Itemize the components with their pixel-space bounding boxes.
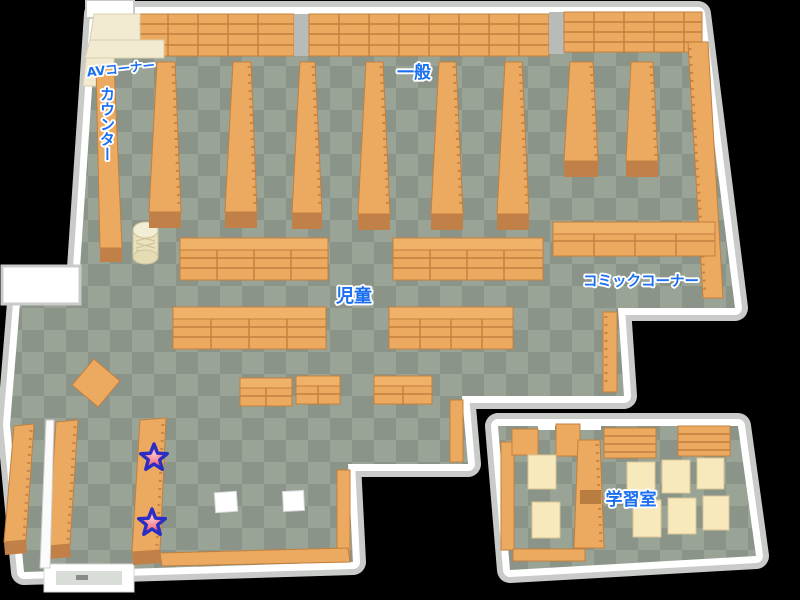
low-shelf-small [374,376,432,404]
top-wall-bookshelves [138,12,702,56]
bookshelf-column [564,62,598,177]
left-wall-protrusion [2,266,80,304]
low-shelf [389,307,513,349]
wall-shelf [337,470,350,558]
main-entrance [44,564,134,592]
bookshelf-run-center [309,14,549,56]
desk [668,498,696,534]
label-children: 児童 [335,285,372,307]
floor-box [282,490,304,511]
study-step-shelf [604,428,656,458]
library-floor-map: AVコーナー カウンター 一般 児童 コミックコーナー 学習室 [0,0,800,600]
study-door-gap [538,419,555,430]
comic-shelf [553,222,715,256]
wall-pillar [549,12,564,54]
bookshelf-run-right [564,12,702,52]
study-shelf [556,424,580,456]
desk [697,458,724,489]
counter-desk-front [100,248,122,262]
label-general: 一般 [397,62,431,83]
wall-pillar [294,14,309,56]
wall-shelf [450,400,463,462]
study-wall-shelf [513,549,585,561]
low-shelf [393,238,543,280]
round-kiosk [133,222,158,264]
study-shelf [512,429,538,455]
entrance-floor [56,571,122,585]
av-cabinet [85,40,164,58]
bookshelf-column [626,62,658,177]
desk [662,460,690,493]
av-cabinet [90,14,140,40]
low-shelf-small [296,376,340,404]
label-comic-corner: コミックコーナー [583,273,699,290]
study-wall-shelf [501,442,514,550]
study-step-shelf [678,426,730,456]
study-divider-shelf [574,440,604,548]
low-shelf [180,238,328,280]
study-door-gap [578,419,601,430]
desk [532,502,560,538]
entrance-mat [76,575,88,580]
desk [703,496,729,530]
desk [528,455,556,489]
label-counter: カウンター [98,87,116,162]
label-study-room: 学習室 [606,489,657,510]
low-shelf-small [240,378,292,406]
floor-box [214,491,237,512]
low-shelf [173,307,326,349]
